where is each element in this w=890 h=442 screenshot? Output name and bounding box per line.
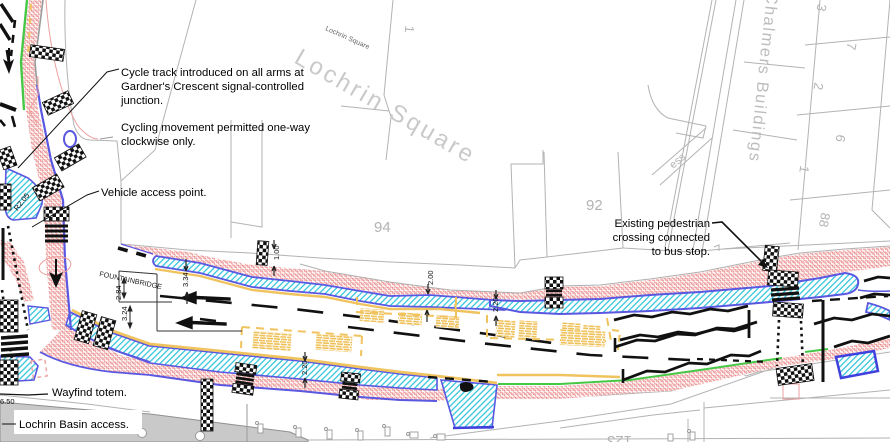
svg-text:2.00: 2.00 [426,270,435,285]
svg-text:3.34: 3.34 [181,272,190,287]
svg-text:clockwise only.: clockwise only. [121,136,196,148]
svg-text:Cycling movement permitted one: Cycling movement permitted one-way [121,122,310,134]
svg-text:Lochrin Basin access.: Lochrin Basin access. [19,419,129,431]
svg-text:1.00: 1.00 [272,245,281,260]
svg-text:123: 123 [607,432,632,442]
svg-text:to bus stop.: to bus stop. [652,246,710,258]
svg-text:1: 1 [402,25,418,34]
svg-text:2.20: 2.20 [491,297,500,312]
svg-text:Gardner's Crescent signal-cont: Gardner's Crescent signal-controlled [121,81,304,93]
svg-text:94: 94 [374,219,391,236]
svg-text:92: 92 [586,197,603,214]
svg-text:Vehicle access point.: Vehicle access point. [101,187,207,199]
svg-text:2.20: 2.20 [300,360,309,375]
svg-text:88: 88 [816,212,833,229]
svg-text:junction.: junction. [120,95,163,107]
svg-text:Wayfind totem.: Wayfind totem. [52,387,127,399]
svg-text:Cycle track introduced on all: Cycle track introduced on all arms at [121,67,305,79]
svg-text:crossing connected: crossing connected [613,232,710,244]
svg-text:3.24: 3.24 [120,306,129,321]
svg-text:2.84: 2.84 [114,285,123,300]
svg-text:6.50: 6.50 [0,397,15,406]
svg-text:Existing pedestrian: Existing pedestrian [615,218,710,230]
